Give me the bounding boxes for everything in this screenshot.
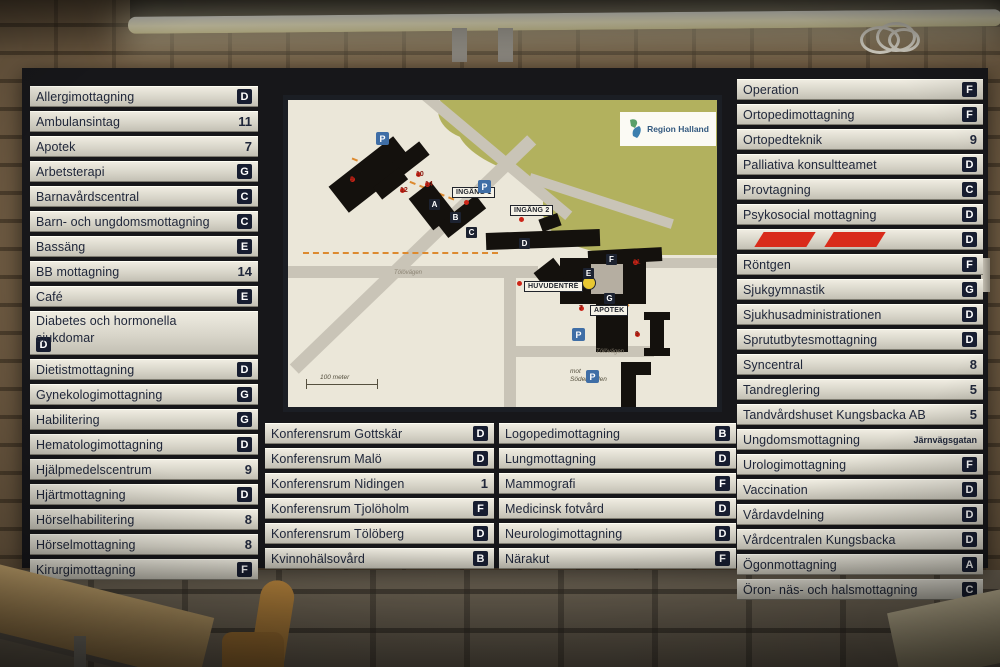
room-label: Kirurgimottagning: [36, 563, 136, 577]
location-code: B: [473, 551, 488, 566]
room-label: Medicinsk fotvård: [505, 502, 604, 516]
closed-hazard-stripe: [754, 232, 815, 247]
room-label: Tandreglering: [743, 383, 820, 397]
location-code: D: [962, 332, 977, 347]
directory-row: Tandreglering5: [737, 379, 983, 400]
room-label: Tandvårdshuset Kungsbacka AB: [743, 408, 926, 422]
directory-row: RöntgenF: [737, 254, 983, 275]
parking-icon: P: [376, 132, 389, 145]
room-label: Konferensrum Tölöberg: [271, 527, 404, 541]
room-label: Mammografi: [505, 477, 575, 491]
room-label: Barnavårdscentral: [36, 190, 139, 204]
directory-row: KirurgimottagningF: [30, 559, 258, 580]
location-code: D: [962, 482, 977, 497]
location-code: G: [237, 387, 252, 402]
location-code: E: [237, 289, 252, 304]
room-label: BB mottagning: [36, 265, 119, 279]
coiled-cable: [858, 20, 924, 58]
location-code: 9: [245, 462, 252, 477]
location-code: Järnvägsgatan: [913, 435, 977, 445]
room-label: Provtagning: [743, 183, 811, 197]
location-code: D: [962, 532, 977, 547]
directory-row: Apotek7: [30, 136, 258, 157]
room-label: Psykosocial mottagning: [743, 208, 877, 222]
location-code: 8: [970, 357, 977, 372]
directory-row: KvinnohälsovårdB: [265, 548, 494, 569]
room-label: Hjärtmottagning: [36, 488, 126, 502]
location-code: F: [715, 476, 730, 491]
directory-row: Hörselmottagning8: [30, 534, 258, 555]
location-code: 9: [970, 132, 977, 147]
location-code: 8: [245, 537, 252, 552]
location-code: D: [237, 487, 252, 502]
room-label: Syncentral: [743, 358, 803, 372]
location-code: F: [237, 562, 252, 577]
location-code: A: [962, 557, 977, 572]
directory-row: GynekologimottagningG: [30, 384, 258, 405]
parking-icon: P: [572, 328, 585, 341]
room-label: Sjukhusadministrationen: [743, 308, 882, 322]
site-map-panel: INGÅNG 1 INGÅNG 2 HUVUDENTRÉ APOTEK Tölö…: [283, 95, 722, 412]
directory-row: Konferensrum TölöbergD: [265, 523, 494, 544]
directory-row: Medicinsk fotvårdD: [499, 498, 736, 519]
directory-left-column: AllergimottagningDAmbulansintag11Apotek7…: [30, 86, 258, 580]
room-label: Barn- och ungdomsmottagning: [36, 215, 210, 229]
directory-row: VårdavdelningD: [737, 504, 983, 525]
directory-row: Konferensrum Nidingen1: [265, 473, 494, 494]
map-parking-layer: PPPP: [288, 100, 717, 407]
location-code: D: [473, 526, 488, 541]
room-label: Diabetes och hormonella sjukdomar: [36, 313, 258, 347]
location-code: D: [237, 89, 252, 104]
room-label: Neurologimottagning: [505, 527, 622, 541]
chair-seat: [222, 632, 284, 667]
room-label: Vaccination: [743, 483, 808, 497]
location-code: D: [962, 507, 977, 522]
room-label: Närakut: [505, 552, 549, 566]
location-code: F: [962, 457, 977, 472]
directory-row: SjukhusadministrationenD: [737, 304, 983, 325]
location-code: C: [237, 189, 252, 204]
location-code: G: [237, 412, 252, 427]
directory-row: BB mottagning14: [30, 261, 258, 282]
room-label: Dietistmottagning: [36, 363, 134, 377]
room-label: Vårdcentralen Kungsbacka: [743, 533, 896, 547]
directory-row: Vårdcentralen KungsbackaD: [737, 529, 983, 550]
directory-row: HjärtmottagningD: [30, 484, 258, 505]
directory-row: Konferensrum MalöD: [265, 448, 494, 469]
directory-row: LungmottagningD: [499, 448, 736, 469]
directory-row: HabiliteringG: [30, 409, 258, 430]
light-bracket: [452, 28, 467, 62]
room-label: Lungmottagning: [505, 452, 596, 466]
directory-row: Ambulansintag11: [30, 111, 258, 132]
directory-row: OperationF: [737, 79, 983, 100]
location-code: F: [473, 501, 488, 516]
room-label: Gynekologimottagning: [36, 388, 162, 402]
directory-row: NeurologimottagningD: [499, 523, 736, 544]
room-label: Ambulansintag: [36, 115, 120, 129]
directory-row: Diabetes och hormonella sjukdomarD: [30, 311, 258, 355]
directory-row: UrologimottagningF: [737, 454, 983, 475]
directory-row: Psykosocial mottagningD: [737, 204, 983, 225]
closed-hazard-stripe: [824, 232, 885, 247]
location-code: 14: [238, 264, 252, 279]
room-label: Konferensrum Nidingen: [271, 477, 404, 491]
room-label: Konferensrum Malö: [271, 452, 382, 466]
room-label: Sprututbytesmottagning: [743, 333, 877, 347]
room-label: Palliativa konsultteamet: [743, 158, 877, 172]
room-label: Hörselmottagning: [36, 538, 136, 552]
location-code: F: [715, 551, 730, 566]
table-leg: [74, 636, 86, 667]
room-label: Allergimottagning: [36, 90, 134, 104]
directory-row: Palliativa konsultteametD: [737, 154, 983, 175]
directory-row: AllergimottagningD: [30, 86, 258, 107]
location-code: D: [962, 157, 977, 172]
directory-row: NärakutF: [499, 548, 736, 569]
location-code: 8: [245, 512, 252, 527]
room-label: Röntgen: [743, 258, 791, 272]
location-code: D: [962, 307, 977, 322]
directory-row: BassängE: [30, 236, 258, 257]
room-label: Ögonmottagning: [743, 558, 837, 572]
light-bracket: [498, 28, 513, 62]
location-code: G: [237, 164, 252, 179]
location-code: 11: [238, 114, 252, 129]
room-label: Hematologimottagning: [36, 438, 163, 452]
location-code: C: [962, 182, 977, 197]
location-code: F: [962, 257, 977, 272]
directory-row: ArbetsterapiG: [30, 161, 258, 182]
room-label: Ungdomsmottagning: [743, 433, 860, 447]
directory-row: Tandvårdshuset Kungsbacka AB5: [737, 404, 983, 425]
directory-row: Konferensrum GottskärD: [265, 423, 494, 444]
directory-row: Syncentral8: [737, 354, 983, 375]
directory-row: DietistmottagningD: [30, 359, 258, 380]
room-label: Sjukgymnastik: [743, 283, 825, 297]
directory-row: MammografiF: [499, 473, 736, 494]
location-code: D: [237, 437, 252, 452]
chair: [222, 580, 308, 667]
location-code: D: [962, 232, 977, 247]
location-code: 5: [970, 382, 977, 397]
room-label: Bassäng: [36, 240, 85, 254]
directory-row: LogopedimottagningB: [499, 423, 736, 444]
photo-of-hospital-directory-sign: AllergimottagningDAmbulansintag11Apotek7…: [0, 0, 1000, 667]
directory-row: Öron- näs- och halsmottagningC: [737, 579, 983, 600]
directory-row: D: [737, 229, 983, 250]
directory-row: SprututbytesmottagningD: [737, 329, 983, 350]
directory-bottom-left-column: Konferensrum GottskärDKonferensrum MalöD…: [265, 423, 494, 569]
room-label: Café: [36, 290, 63, 304]
parking-icon: P: [478, 180, 491, 193]
directory-bottom-center-column: LogopedimottagningBLungmottagningDMammog…: [499, 423, 736, 569]
room-label: Apotek: [36, 140, 76, 154]
room-label: Arbetsterapi: [36, 165, 105, 179]
directory-row: OrtopedimottagningF: [737, 104, 983, 125]
location-code: 5: [970, 407, 977, 422]
location-code: D: [473, 451, 488, 466]
location-code: 1: [481, 476, 488, 491]
location-code: D: [962, 207, 977, 222]
location-code: F: [962, 107, 977, 122]
room-label: Konferensrum Tjolöholm: [271, 502, 409, 516]
location-code: D: [715, 501, 730, 516]
room-label: Kvinnohälsovård: [271, 552, 365, 566]
room-label: Habilitering: [36, 413, 100, 427]
directory-row: VaccinationD: [737, 479, 983, 500]
room-label: Konferensrum Gottskär: [271, 427, 402, 441]
room-label: Hörselhabilitering: [36, 513, 134, 527]
directory-row: BarnavårdscentralC: [30, 186, 258, 207]
directory-row: Hjälpmedelscentrum9: [30, 459, 258, 480]
parking-icon: P: [586, 370, 599, 383]
directory-row: CaféE: [30, 286, 258, 307]
directory-row: ProvtagningC: [737, 179, 983, 200]
room-label: Ortopedteknik: [743, 133, 822, 147]
directory-row: HematologimottagningD: [30, 434, 258, 455]
room-label: Hjälpmedelscentrum: [36, 463, 152, 477]
room-label: Urologimottagning: [743, 458, 846, 472]
location-code: B: [715, 426, 730, 441]
directory-row: Konferensrum TjolöholmF: [265, 498, 494, 519]
room-label: Operation: [743, 83, 799, 97]
location-code: E: [237, 239, 252, 254]
location-code: F: [962, 82, 977, 97]
location-code: D: [715, 451, 730, 466]
room-label: Logopedimottagning: [505, 427, 620, 441]
directory-row: Hörselhabilitering8: [30, 509, 258, 530]
location-code: 7: [245, 139, 252, 154]
directory-row: SjukgymnastikG: [737, 279, 983, 300]
directory-right-column: OperationFOrtopedimottagningFOrtopedtekn…: [737, 79, 983, 600]
directory-row: UngdomsmottagningJärnvägsgatan: [737, 429, 983, 450]
room-label: Ortopedimottagning: [743, 108, 855, 122]
location-code: D: [715, 526, 730, 541]
location-code: C: [237, 214, 252, 229]
room-label: Vårdavdelning: [743, 508, 824, 522]
location-code: G: [962, 282, 977, 297]
directory-row: ÖgonmottagningA: [737, 554, 983, 575]
location-code: D: [237, 362, 252, 377]
directory-row: Barn- och ungdomsmottagningC: [30, 211, 258, 232]
directory-row: Ortopedteknik9: [737, 129, 983, 150]
location-code: D: [473, 426, 488, 441]
room-label: Öron- näs- och halsmottagning: [743, 583, 918, 597]
